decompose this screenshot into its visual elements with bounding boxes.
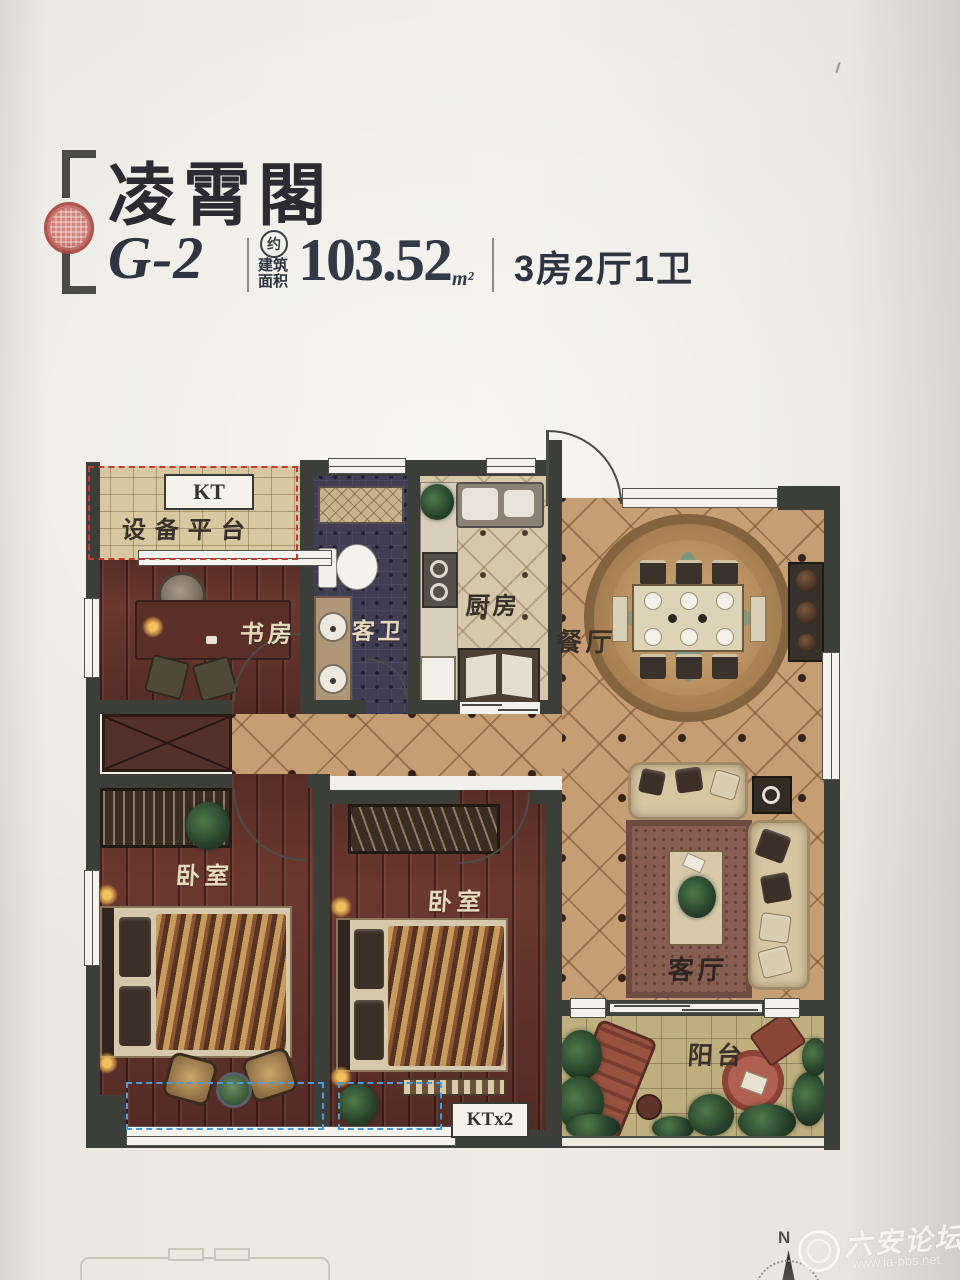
sink-basin xyxy=(462,488,498,520)
faucet-dot xyxy=(330,626,336,632)
dining-chair xyxy=(712,560,738,585)
window xyxy=(486,458,536,474)
wall xyxy=(540,700,562,714)
entry-side-window xyxy=(622,488,778,508)
room-label-study: 书房 xyxy=(239,614,297,649)
double-bed xyxy=(100,906,292,1058)
wall xyxy=(330,790,458,804)
kitchen-plant xyxy=(420,484,454,520)
area-label-line2: 面积 xyxy=(258,274,288,290)
sofa-pillow xyxy=(760,872,792,904)
headboard xyxy=(338,920,350,1070)
plate-icon xyxy=(680,592,698,610)
duct-shaft xyxy=(102,714,232,772)
sofa-pillow xyxy=(638,768,666,796)
area-label: 建筑 面积 xyxy=(258,258,288,290)
plate-icon xyxy=(644,628,662,646)
desk-lamp-icon xyxy=(142,616,164,638)
room-label-guest-bath: 客卫 xyxy=(351,612,405,646)
brochure-page: 凌霄閣 G-2 约 建筑 面积 103.52 m² 3房2厅1卫 xyxy=(0,0,960,1280)
faucet-dot xyxy=(330,678,336,684)
wall xyxy=(824,486,840,1150)
ac-platform-outline xyxy=(338,1082,442,1130)
ac-platform-outline xyxy=(126,1082,324,1130)
sofa-pillow xyxy=(758,912,792,944)
window xyxy=(764,998,800,1018)
balcony-plant xyxy=(688,1094,734,1136)
dining-bench xyxy=(750,596,766,642)
wall xyxy=(86,462,100,1148)
cabinet-door xyxy=(466,654,496,698)
bedside-lamp-icon xyxy=(330,896,352,918)
headboard xyxy=(102,908,114,1056)
approx-badge: 约 xyxy=(260,230,288,258)
sink-basin xyxy=(504,490,534,517)
burner-icon xyxy=(430,560,448,578)
entry-door-arc xyxy=(548,430,622,504)
kitchen-slider-leaf xyxy=(498,709,538,711)
sofa-pillow xyxy=(674,766,703,793)
ktx2-badge: KTx2 xyxy=(451,1102,529,1138)
bath-mat xyxy=(318,486,404,524)
compass-north-label: N xyxy=(778,1228,790,1248)
balcony-railing xyxy=(562,1136,824,1148)
area-unit: m² xyxy=(452,268,474,291)
burner-icon xyxy=(430,583,448,601)
bed-pillow xyxy=(119,986,151,1046)
bedroom-plant xyxy=(186,802,230,850)
room-label-living: 客厅 xyxy=(667,950,730,987)
side-stool xyxy=(636,1094,662,1120)
wall xyxy=(302,700,366,714)
window xyxy=(84,598,100,678)
sliding-door-leaf xyxy=(682,1009,758,1011)
kt-badge: KT xyxy=(164,474,254,510)
balcony-plant xyxy=(792,1072,826,1126)
dining-chair xyxy=(676,654,702,679)
room-label-bedroom-left: 卧室 xyxy=(175,856,235,891)
divider xyxy=(492,238,494,292)
bed-pillow xyxy=(354,1000,384,1060)
entry-door-leaf xyxy=(546,430,549,506)
window xyxy=(328,458,406,474)
room-label-equipment-platform: 设备平台 xyxy=(121,510,255,545)
plate-icon xyxy=(680,628,698,646)
wall xyxy=(86,774,232,788)
window xyxy=(570,998,606,1018)
wall xyxy=(408,700,460,714)
header: 凌霄閣 G-2 约 建筑 面积 103.52 m² 3房2厅1卫 xyxy=(0,0,960,330)
room-label-bedroom-middle: 卧室 xyxy=(427,882,487,917)
sliding-door xyxy=(610,1002,762,1014)
wall xyxy=(300,460,314,714)
wall xyxy=(86,700,232,714)
corridor-floor xyxy=(232,714,562,776)
table-plant xyxy=(678,876,716,918)
watermark-site-url: www.la-bbs.net xyxy=(852,1252,941,1272)
bracket-bottom-icon xyxy=(62,286,96,294)
room-label-balcony: 阳台 xyxy=(687,1036,748,1072)
window xyxy=(822,652,840,780)
plate-icon xyxy=(644,592,662,610)
sliding-door-leaf xyxy=(614,1005,690,1007)
room-label-dining: 餐厅 xyxy=(555,622,618,659)
dining-chair xyxy=(676,560,702,585)
unit-code: G-2 xyxy=(108,224,204,293)
divider xyxy=(247,238,249,292)
seal-texture xyxy=(50,208,88,248)
window xyxy=(84,870,100,966)
cabinet-door xyxy=(502,654,532,698)
bowl-icon xyxy=(698,614,707,623)
layout-spec: 3房2厅1卫 xyxy=(514,240,694,292)
kitchen-slider xyxy=(460,702,540,714)
watermark: 六安论坛 www.la-bbs.net xyxy=(796,1212,960,1280)
dining-chair xyxy=(640,654,666,679)
bed-pillow xyxy=(119,917,151,977)
plate-icon xyxy=(716,592,734,610)
plate-icon xyxy=(716,628,734,646)
double-bed xyxy=(336,918,508,1072)
decor-bowl-icon xyxy=(796,570,818,592)
decor-bowl-icon xyxy=(796,602,818,624)
bed-duvet xyxy=(388,926,504,1066)
bed-pillow xyxy=(354,929,384,989)
balcony-plant xyxy=(560,1030,602,1080)
wall xyxy=(408,460,420,714)
wall xyxy=(546,790,562,1148)
kitchen-slider-leaf xyxy=(462,704,502,706)
toilet-icon xyxy=(336,544,378,590)
dining-chair xyxy=(640,560,666,585)
area-value: 103.52 xyxy=(298,226,451,295)
bowl-icon xyxy=(668,614,677,623)
bracket-top-icon xyxy=(62,150,70,198)
decor-bowl-icon xyxy=(798,634,816,652)
bed-duvet xyxy=(156,914,286,1050)
watermark-logo-icon xyxy=(798,1230,840,1272)
fridge xyxy=(420,656,456,706)
dining-chair xyxy=(712,654,738,679)
speaker-icon xyxy=(762,786,780,804)
balcony-plant xyxy=(738,1104,796,1140)
desk-cup xyxy=(206,636,217,644)
area-label-line1: 建筑 xyxy=(258,258,288,274)
watermark-logo-inner xyxy=(807,1239,831,1263)
room-label-kitchen: 厨房 xyxy=(465,586,521,621)
